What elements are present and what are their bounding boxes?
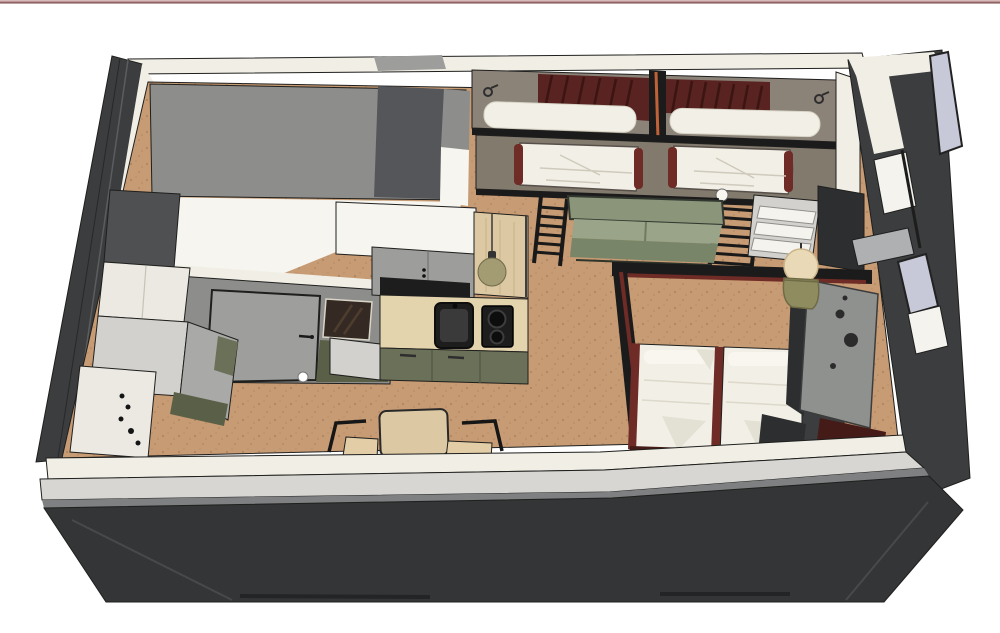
kitchen-sink-basin <box>440 309 468 342</box>
mirror <box>323 299 372 340</box>
bunk-bolster-left-a <box>514 144 523 185</box>
upper-bunk-pillow-right <box>670 108 821 137</box>
top-border-line <box>0 0 1000 4</box>
floorplan-render-page <box>0 0 1000 633</box>
door-stop-ball <box>298 372 308 382</box>
cooktop-burner-small <box>491 331 504 344</box>
top-line-dark <box>0 2 1000 4</box>
bathroom-tall-cabinet <box>104 190 180 268</box>
pendant-lamp-small <box>478 258 506 286</box>
kitchen-end-cabinet <box>330 338 380 380</box>
washer-cabinet <box>70 366 156 458</box>
bunk-bolster-right-a <box>668 147 677 188</box>
floorplan-3d-render <box>0 0 1000 633</box>
door-handle <box>299 336 311 337</box>
sofa-cushion-seam <box>645 222 646 242</box>
lower-bunk-opening-left <box>517 143 641 191</box>
bed-pillow-right <box>728 352 790 366</box>
wood-bar-cabinet <box>474 212 528 298</box>
pendant-lamp-large-shade <box>783 278 818 309</box>
cooktop-burner-large <box>489 311 506 328</box>
sofa <box>568 196 724 265</box>
lower-bunk-opening-right <box>671 146 793 194</box>
sink-faucet <box>453 304 458 309</box>
bedroom-nook <box>612 243 886 462</box>
bunk-post-orange-stripe <box>656 72 658 139</box>
base-cabinets-olive <box>380 348 528 384</box>
back-wall-gray-segment <box>374 55 446 71</box>
front-wall <box>40 435 963 602</box>
bunk-bolster-left-b <box>634 148 643 189</box>
bunk-bolster-right-b <box>784 151 793 192</box>
bathroom-wall-return <box>441 89 470 150</box>
upper-bunk-pillow-left <box>484 101 637 132</box>
bathroom-shower-partition <box>374 86 444 199</box>
dining-table <box>379 409 449 457</box>
bunk-beds <box>472 70 860 209</box>
door-handle-knob <box>310 335 314 339</box>
bathroom-wall-return-lower <box>440 147 469 206</box>
